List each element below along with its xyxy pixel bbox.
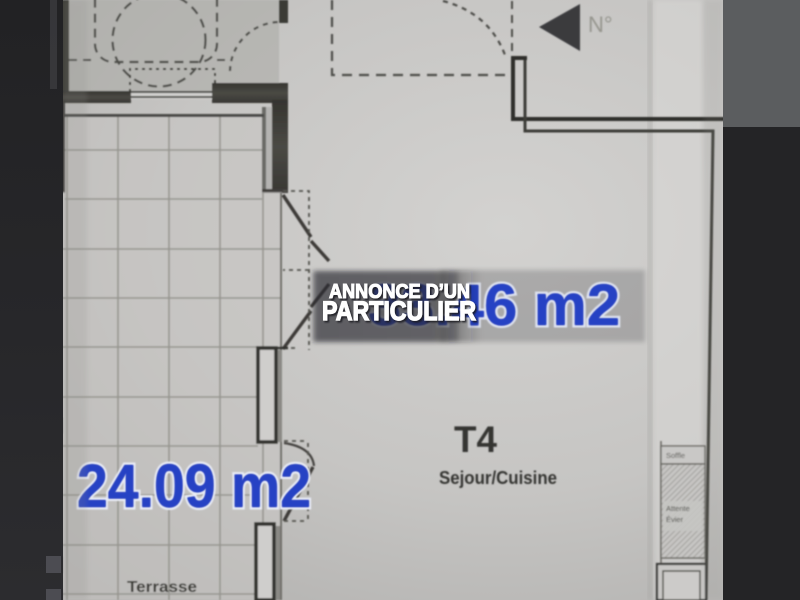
svg-text:Sejour/Cuisine: Sejour/Cuisine (439, 468, 557, 488)
svg-text:N°: N° (588, 12, 613, 37)
svg-text:Soffle: Soffle (666, 451, 685, 460)
svg-text:Terrasse: Terrasse (127, 579, 197, 596)
svg-text:24.09 m2: 24.09 m2 (77, 452, 311, 520)
svg-text:Évier: Évier (666, 515, 684, 524)
svg-text:Attente: Attente (666, 504, 690, 513)
svg-text:T4: T4 (454, 419, 497, 460)
svg-text:PARTICULIER: PARTICULIER (322, 296, 476, 326)
